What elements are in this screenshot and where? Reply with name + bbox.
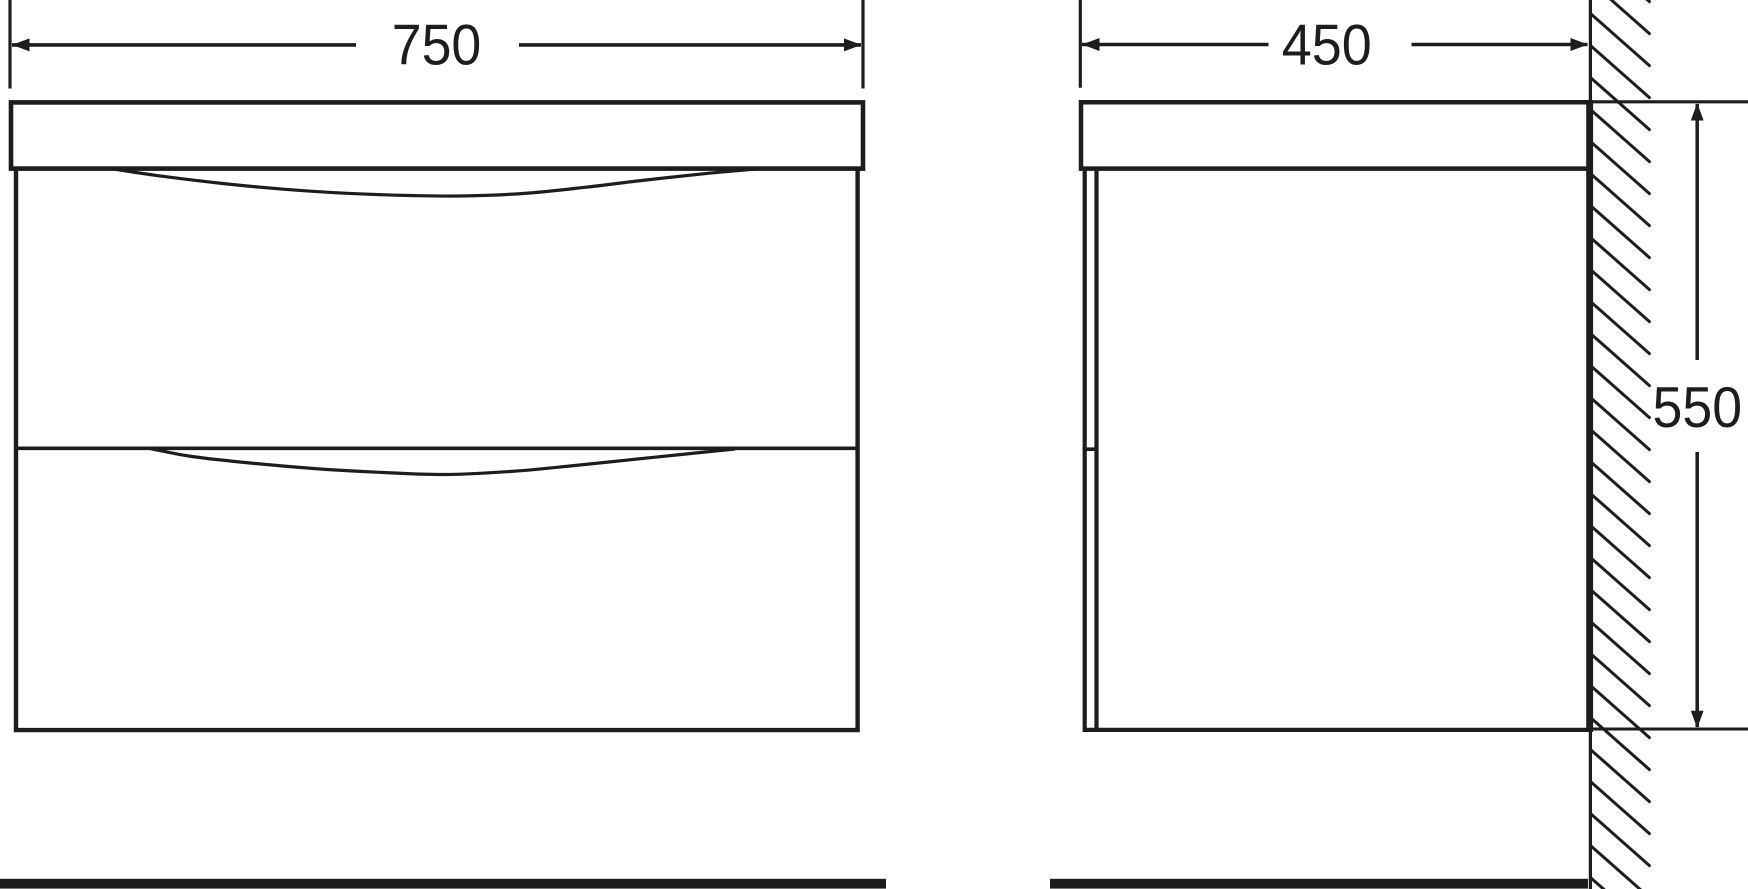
svg-text:750: 750 — [392, 14, 482, 78]
svg-text:550: 550 — [1653, 376, 1743, 440]
svg-text:450: 450 — [1282, 14, 1372, 78]
